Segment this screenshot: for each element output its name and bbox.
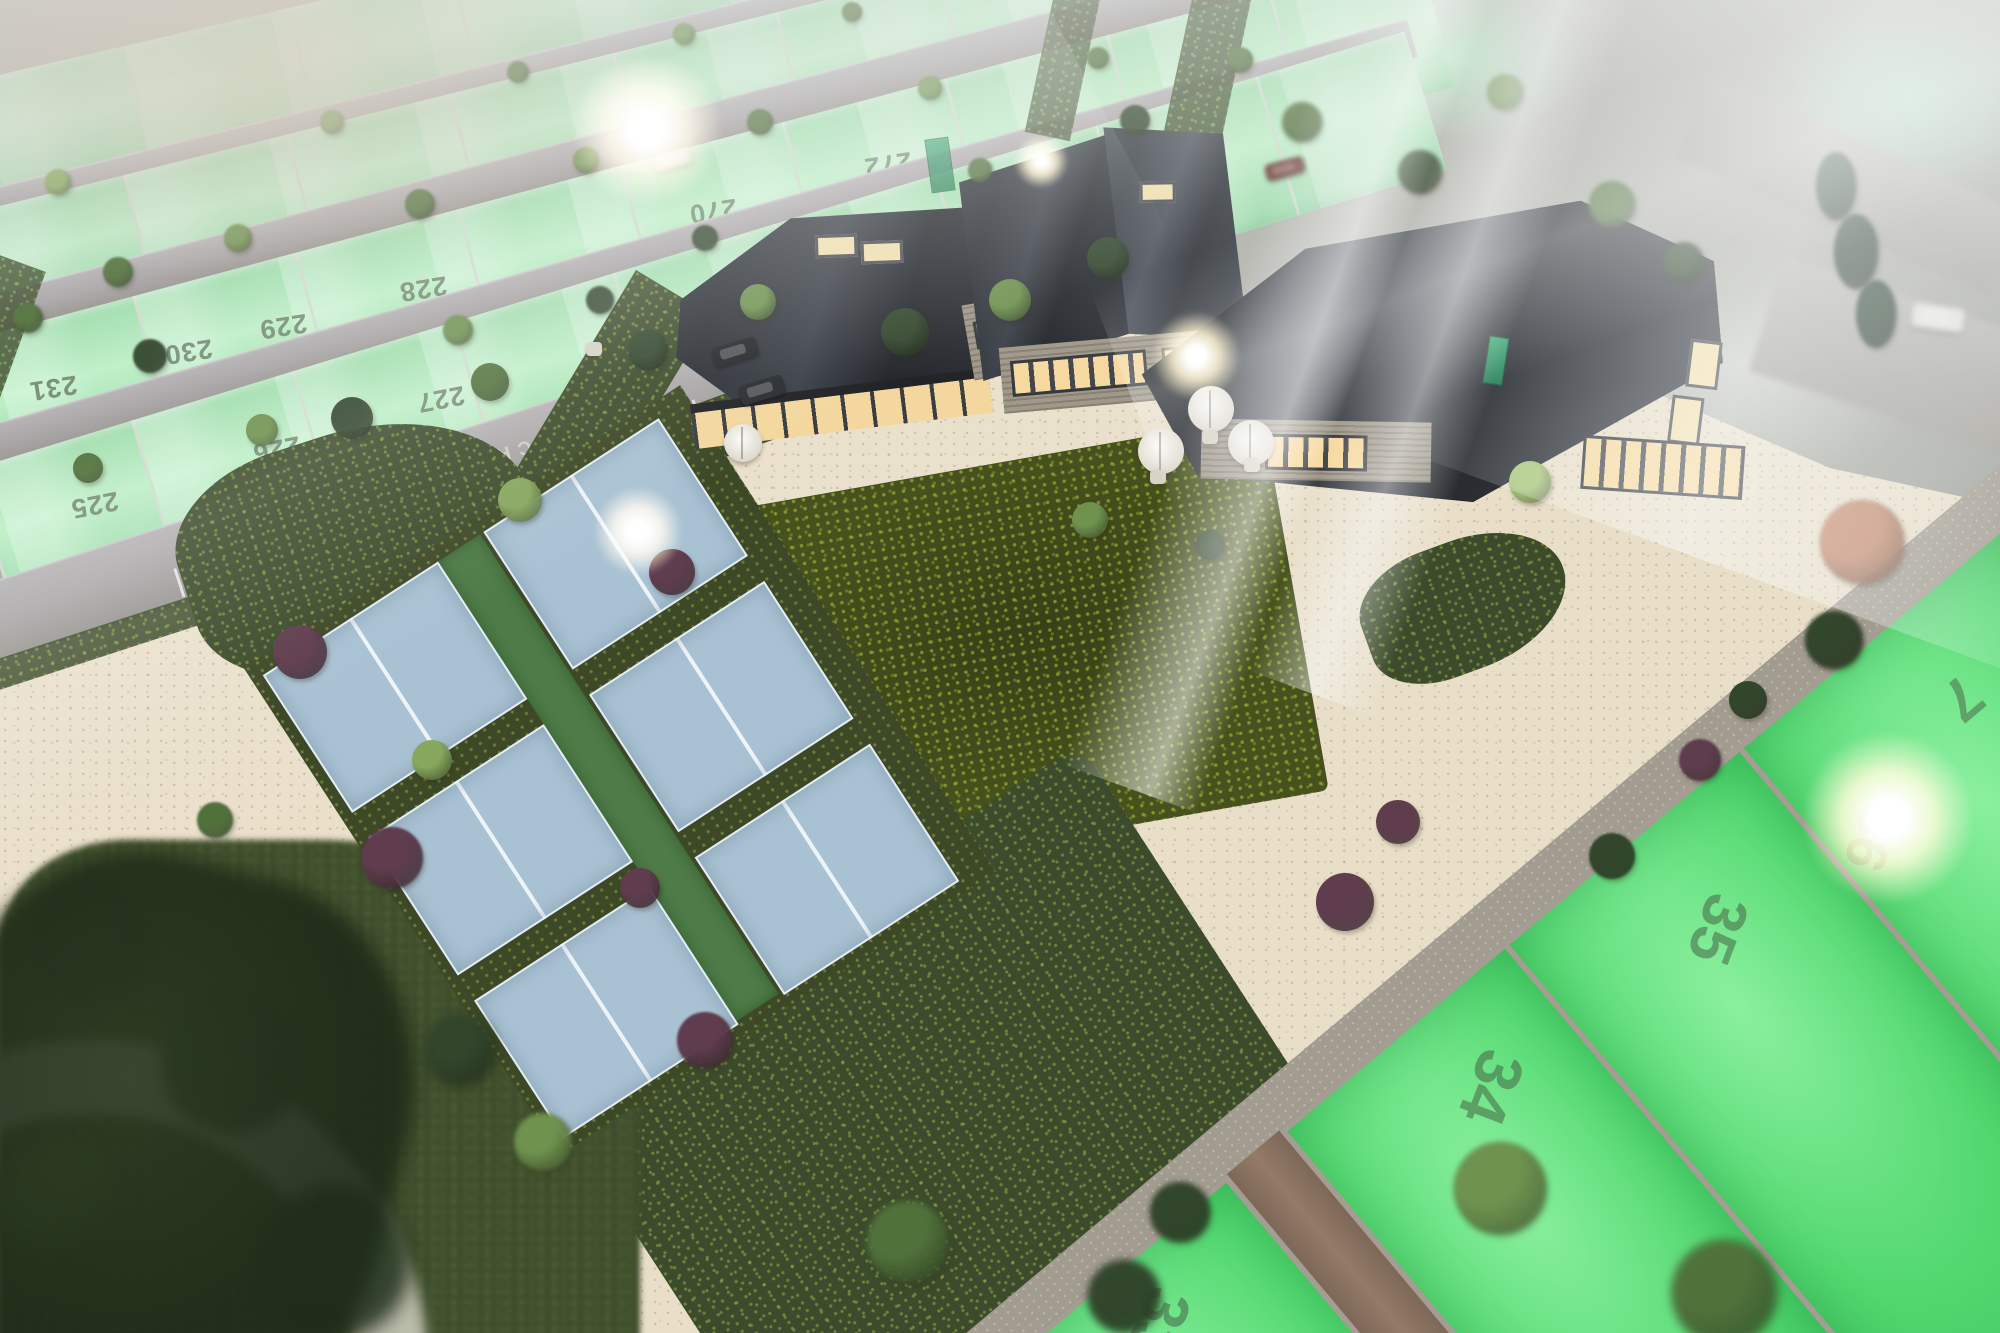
tree xyxy=(673,23,695,45)
tree xyxy=(1509,461,1551,503)
tree xyxy=(405,189,435,219)
tree xyxy=(1589,181,1635,227)
tree xyxy=(1856,280,1896,348)
tree xyxy=(1282,102,1322,142)
tree xyxy=(1072,502,1108,538)
tree xyxy=(1150,1182,1210,1242)
tree xyxy=(1087,237,1129,279)
tree xyxy=(881,308,929,356)
tree xyxy=(273,625,327,679)
tree xyxy=(1729,681,1767,719)
tree xyxy=(197,802,233,838)
tree xyxy=(867,1201,949,1283)
tree xyxy=(320,110,344,134)
model-car xyxy=(1911,302,1966,333)
tree xyxy=(1120,105,1150,135)
tree xyxy=(1376,800,1420,844)
tree xyxy=(1487,74,1523,110)
tree xyxy=(133,339,167,373)
tree xyxy=(747,109,773,135)
tree xyxy=(573,147,599,173)
tree xyxy=(425,1015,495,1085)
tree xyxy=(1087,47,1109,69)
model-car xyxy=(710,336,760,369)
tree xyxy=(1834,214,1878,289)
tree xyxy=(13,303,43,333)
tree xyxy=(507,61,529,83)
tree xyxy=(1088,1260,1160,1332)
model-car xyxy=(1263,155,1306,182)
tree xyxy=(1316,873,1374,931)
tree xyxy=(1672,1240,1776,1333)
tree xyxy=(1679,739,1721,781)
tree xyxy=(620,868,660,908)
model-car xyxy=(651,147,694,173)
tree xyxy=(918,76,942,100)
tree xyxy=(677,1012,733,1068)
tree xyxy=(740,284,776,320)
tree xyxy=(628,330,668,370)
tree xyxy=(471,363,509,401)
tree xyxy=(73,453,103,483)
tree xyxy=(443,315,473,345)
tree xyxy=(1589,833,1635,879)
tree xyxy=(1195,530,1225,560)
tree xyxy=(103,257,133,287)
tree xyxy=(842,2,862,22)
tree xyxy=(514,1113,572,1171)
tree xyxy=(586,286,614,314)
tree xyxy=(1820,500,1904,584)
tree xyxy=(224,224,252,252)
tree xyxy=(412,740,452,780)
tree xyxy=(1664,242,1704,282)
tree xyxy=(361,827,423,889)
tree xyxy=(649,549,695,595)
tree xyxy=(45,169,71,195)
model-car xyxy=(737,374,787,407)
tree xyxy=(692,225,718,251)
tree xyxy=(1227,47,1253,73)
tree xyxy=(1398,150,1442,194)
tree xyxy=(968,158,992,182)
tree xyxy=(1454,1142,1546,1234)
tree xyxy=(1816,152,1856,220)
tree xyxy=(989,279,1031,321)
tree xyxy=(246,414,278,446)
tree xyxy=(331,397,373,439)
tree xyxy=(1805,611,1863,669)
tree xyxy=(498,478,542,522)
model-scene: 231 230 229 228 270 272 225 226 227 276 … xyxy=(0,0,2000,1333)
